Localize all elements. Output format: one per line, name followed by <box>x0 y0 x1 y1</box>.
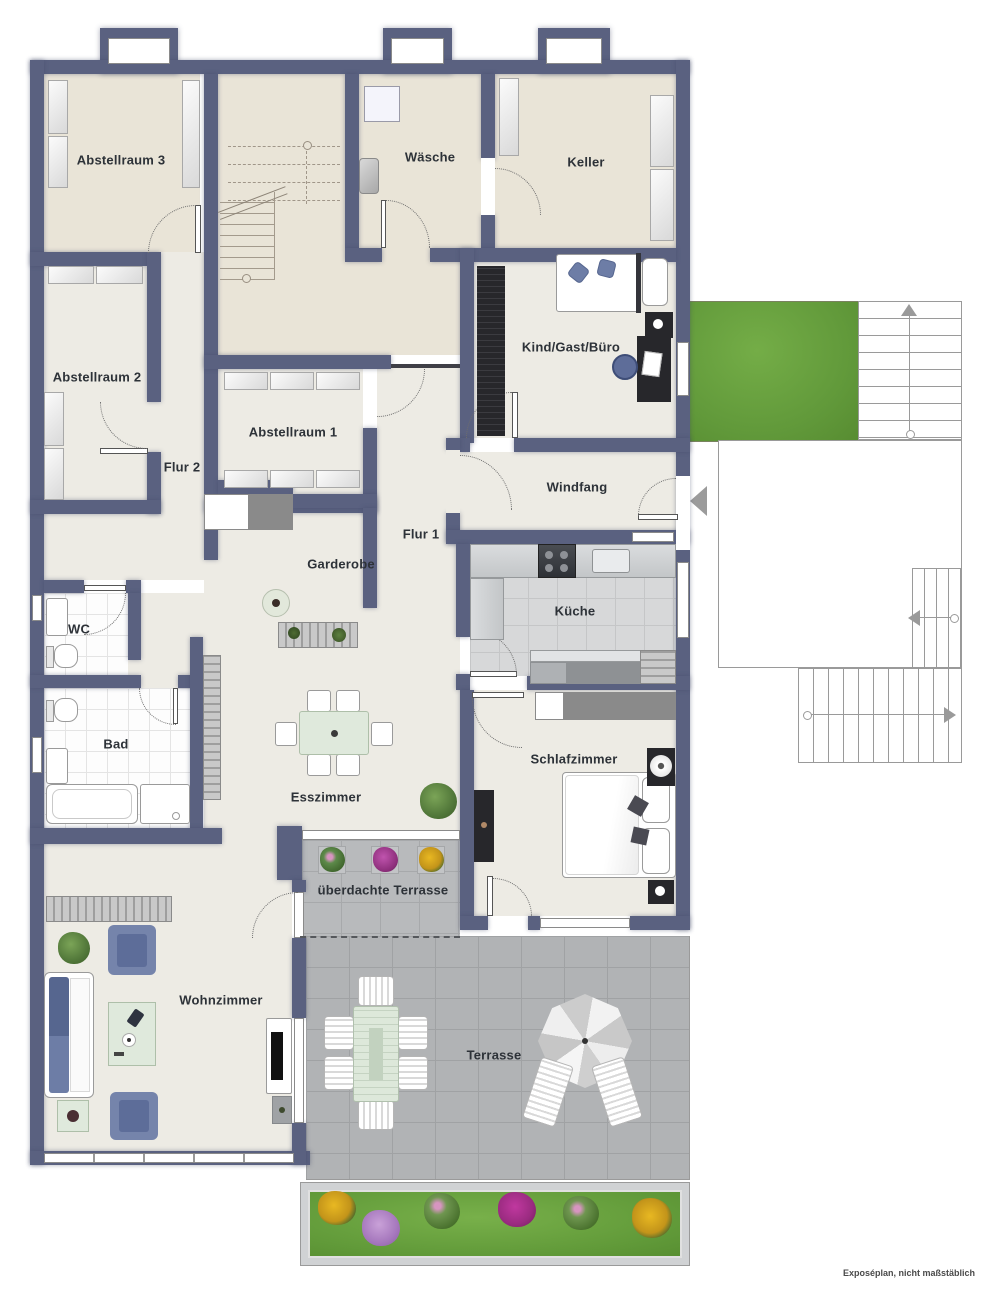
room-label-wc: WC <box>68 622 90 637</box>
wall <box>292 1123 306 1165</box>
room-label-abstellraum3: Abstellraum 3 <box>77 153 166 168</box>
dining-chair <box>371 722 393 746</box>
outdoor-chair <box>398 1016 428 1050</box>
window <box>540 918 630 928</box>
speaker <box>650 755 672 777</box>
kitchen-sink <box>592 549 630 573</box>
terrace-edge <box>689 936 690 1180</box>
shelf <box>270 372 314 390</box>
stair-start-marker <box>950 614 959 623</box>
washing-machine <box>364 86 400 122</box>
room-label-flur1: Flur 1 <box>403 527 440 542</box>
wall <box>528 916 540 930</box>
stair-start-marker <box>906 430 915 439</box>
dining-chair <box>307 690 331 712</box>
shelf <box>182 80 200 188</box>
room-label-flur2: Flur 2 <box>164 460 201 475</box>
shelf <box>96 266 143 284</box>
wall <box>630 916 690 930</box>
dining-chair <box>336 690 360 712</box>
flowers-rose-bush <box>563 1196 599 1230</box>
window <box>32 595 42 621</box>
stair-lower-flight <box>220 192 275 280</box>
wc-sink <box>46 598 68 636</box>
dish-center <box>127 1038 131 1042</box>
wall <box>292 938 306 1018</box>
room-label-abstellraum1: Abstellraum 1 <box>249 425 338 440</box>
room-label-waesche: Wäsche <box>405 150 455 165</box>
shelf <box>316 470 360 488</box>
flowers-sunflower <box>419 847 444 872</box>
shelf <box>499 78 519 156</box>
dining-chair <box>275 722 297 746</box>
room-label-windfang: Windfang <box>547 480 608 495</box>
round-plant-center <box>272 599 280 607</box>
room-label-keller: Keller <box>567 155 604 170</box>
floor-landing <box>345 248 460 355</box>
wall-pillar <box>277 826 302 880</box>
shelf <box>650 169 674 241</box>
dresser-knob <box>481 822 487 828</box>
stove-burner <box>545 551 553 559</box>
wall <box>481 74 495 160</box>
wall <box>128 593 141 660</box>
outdoor-table-runner <box>369 1028 383 1080</box>
stair-dashed-step <box>228 164 340 165</box>
wall <box>446 438 460 450</box>
stove-burner <box>560 564 568 572</box>
stair-left-arrow-icon <box>908 610 920 626</box>
stove-burner <box>560 551 568 559</box>
dining-chair <box>307 754 331 776</box>
desk-paper <box>641 351 662 377</box>
window-front <box>302 830 460 840</box>
potted-plant <box>332 628 346 642</box>
stair-guide-line <box>918 617 954 618</box>
floor-passage <box>222 828 277 844</box>
door-leaf <box>512 392 518 438</box>
flowers-magenta <box>373 847 398 872</box>
shelf <box>44 448 64 500</box>
tv <box>271 1032 283 1080</box>
outdoor-chair <box>358 976 394 1006</box>
room-label-schlafzimmer: Schlafzimmer <box>531 752 618 767</box>
stair-guide-line <box>810 714 946 715</box>
stove <box>538 544 576 578</box>
wall <box>30 675 141 688</box>
entrance-arrow-icon <box>690 486 707 516</box>
outdoor-chair <box>324 1056 354 1090</box>
bad-sink <box>46 748 68 784</box>
wall <box>126 580 141 593</box>
lamp <box>655 886 665 896</box>
room-label-bad: Bad <box>103 737 128 752</box>
shelf <box>48 80 68 134</box>
shelf <box>48 136 68 188</box>
stair-marker <box>303 141 312 150</box>
flowers-purple <box>362 1210 400 1246</box>
terrace-edge <box>306 1179 690 1180</box>
armchair-seat <box>117 934 147 967</box>
parasol-pole <box>582 1038 588 1044</box>
stair-guide-line <box>909 306 910 434</box>
shower <box>140 784 190 824</box>
bed-headboard <box>636 253 641 313</box>
armchair-seat <box>119 1100 149 1132</box>
wardrobe <box>477 266 505 436</box>
bad-toilet <box>54 698 78 722</box>
shelf <box>44 392 64 446</box>
outdoor-chair <box>324 1016 354 1050</box>
bed-duvet <box>565 775 639 875</box>
shelf <box>650 95 674 167</box>
built-in-closet <box>204 494 293 530</box>
wc-toilet-tank <box>46 646 54 668</box>
flowers-magenta <box>498 1192 536 1227</box>
desk-chair <box>612 354 638 380</box>
stair-dashed-line <box>306 146 307 204</box>
wall <box>44 580 84 593</box>
sofa-back-cushions <box>49 977 69 1093</box>
room-label-ueberdachte-terrasse: überdachte Terrasse <box>318 883 449 898</box>
tray <box>114 1052 124 1056</box>
stair-right-arrow-icon <box>944 707 956 723</box>
wc-toilet <box>54 644 78 668</box>
zone-threshold <box>391 364 460 368</box>
window <box>677 342 689 396</box>
wall <box>204 355 391 369</box>
outdoor-chair <box>358 1100 394 1130</box>
shelf <box>48 266 94 284</box>
room-label-wohnzimmer: Wohnzimmer <box>179 993 262 1008</box>
wall <box>292 880 306 892</box>
window <box>294 1018 304 1123</box>
table-center <box>331 730 338 737</box>
potted-plant <box>58 932 90 964</box>
flowers-rose-bush <box>320 847 345 872</box>
lamp <box>653 319 663 329</box>
shelf <box>270 470 314 488</box>
exterior-staircase-top <box>858 301 962 440</box>
bad-toilet-tank <box>46 700 54 722</box>
garden-lawn <box>688 301 860 442</box>
cushion-dark <box>631 827 650 846</box>
wall <box>456 544 470 637</box>
bed-pillow <box>642 258 668 306</box>
wall <box>345 248 382 262</box>
covered-terrace-boundary <box>300 936 460 938</box>
wall <box>460 438 470 452</box>
room-label-kind-gast-buero: Kind/Gast/Büro <box>522 340 620 355</box>
stair-dashed-step <box>228 182 340 183</box>
window-front <box>44 1153 294 1163</box>
wall <box>204 74 218 560</box>
flowers-sunflower <box>632 1198 672 1238</box>
wall <box>30 828 222 844</box>
dining-chair <box>336 754 360 776</box>
door-leaf <box>84 585 126 591</box>
flowers-rose-bush <box>424 1193 460 1229</box>
stair-dashed-step <box>228 146 340 147</box>
window <box>391 38 444 64</box>
window <box>546 38 602 64</box>
wall <box>30 500 161 514</box>
floor-hall-west <box>44 514 161 580</box>
plan-disclaimer-note: Exposéplan, nicht maßstäblich <box>843 1268 975 1278</box>
door-gap <box>676 476 690 550</box>
window <box>108 38 170 64</box>
wall <box>460 916 488 930</box>
door-gap <box>446 450 460 513</box>
wall <box>293 494 377 508</box>
kitchen-cabinet-dark <box>640 650 676 684</box>
radiator-sideboard <box>46 896 172 922</box>
room-label-abstellraum2: Abstellraum 2 <box>53 370 142 385</box>
wardrobe <box>535 692 676 720</box>
stair-marker <box>242 274 251 283</box>
wall <box>345 74 359 248</box>
stair-up-arrow-icon <box>901 304 917 316</box>
floor-plan: Abstellraum 3 Wäsche Keller Abstellraum … <box>0 0 987 1304</box>
shelf <box>316 372 360 390</box>
potted-plant <box>420 783 457 819</box>
shelf <box>224 470 268 488</box>
window <box>32 737 42 773</box>
door-leaf <box>100 448 148 454</box>
wall <box>456 674 470 690</box>
sofa-seat <box>70 978 90 1092</box>
door-gap <box>481 158 495 215</box>
room-label-garderobe: Garderobe <box>307 557 375 572</box>
bathtub-inner <box>52 789 132 819</box>
exterior-staircase-bottom <box>798 668 962 763</box>
laundry-sink <box>359 158 379 194</box>
window <box>632 532 674 542</box>
wall <box>147 252 161 402</box>
potted-plant <box>288 627 300 639</box>
teapot <box>67 1110 79 1122</box>
wall <box>30 252 147 266</box>
wall <box>481 215 495 248</box>
window <box>677 562 689 638</box>
room-label-kueche: Küche <box>555 604 596 619</box>
wall <box>190 637 203 830</box>
shower-drain <box>172 812 180 820</box>
shelf <box>224 372 268 390</box>
room-label-terrasse: Terrasse <box>467 1048 522 1063</box>
flowers-sunflower <box>318 1191 356 1225</box>
wall <box>460 690 474 916</box>
wall <box>514 438 690 452</box>
cabinet-knob <box>279 1107 285 1113</box>
room-label-esszimmer: Esszimmer <box>291 790 361 805</box>
stair-start-marker <box>803 711 812 720</box>
outdoor-chair <box>398 1056 428 1090</box>
kitchen-counter-left <box>470 578 504 640</box>
tall-cabinet <box>203 655 221 800</box>
stove-burner <box>545 564 553 572</box>
